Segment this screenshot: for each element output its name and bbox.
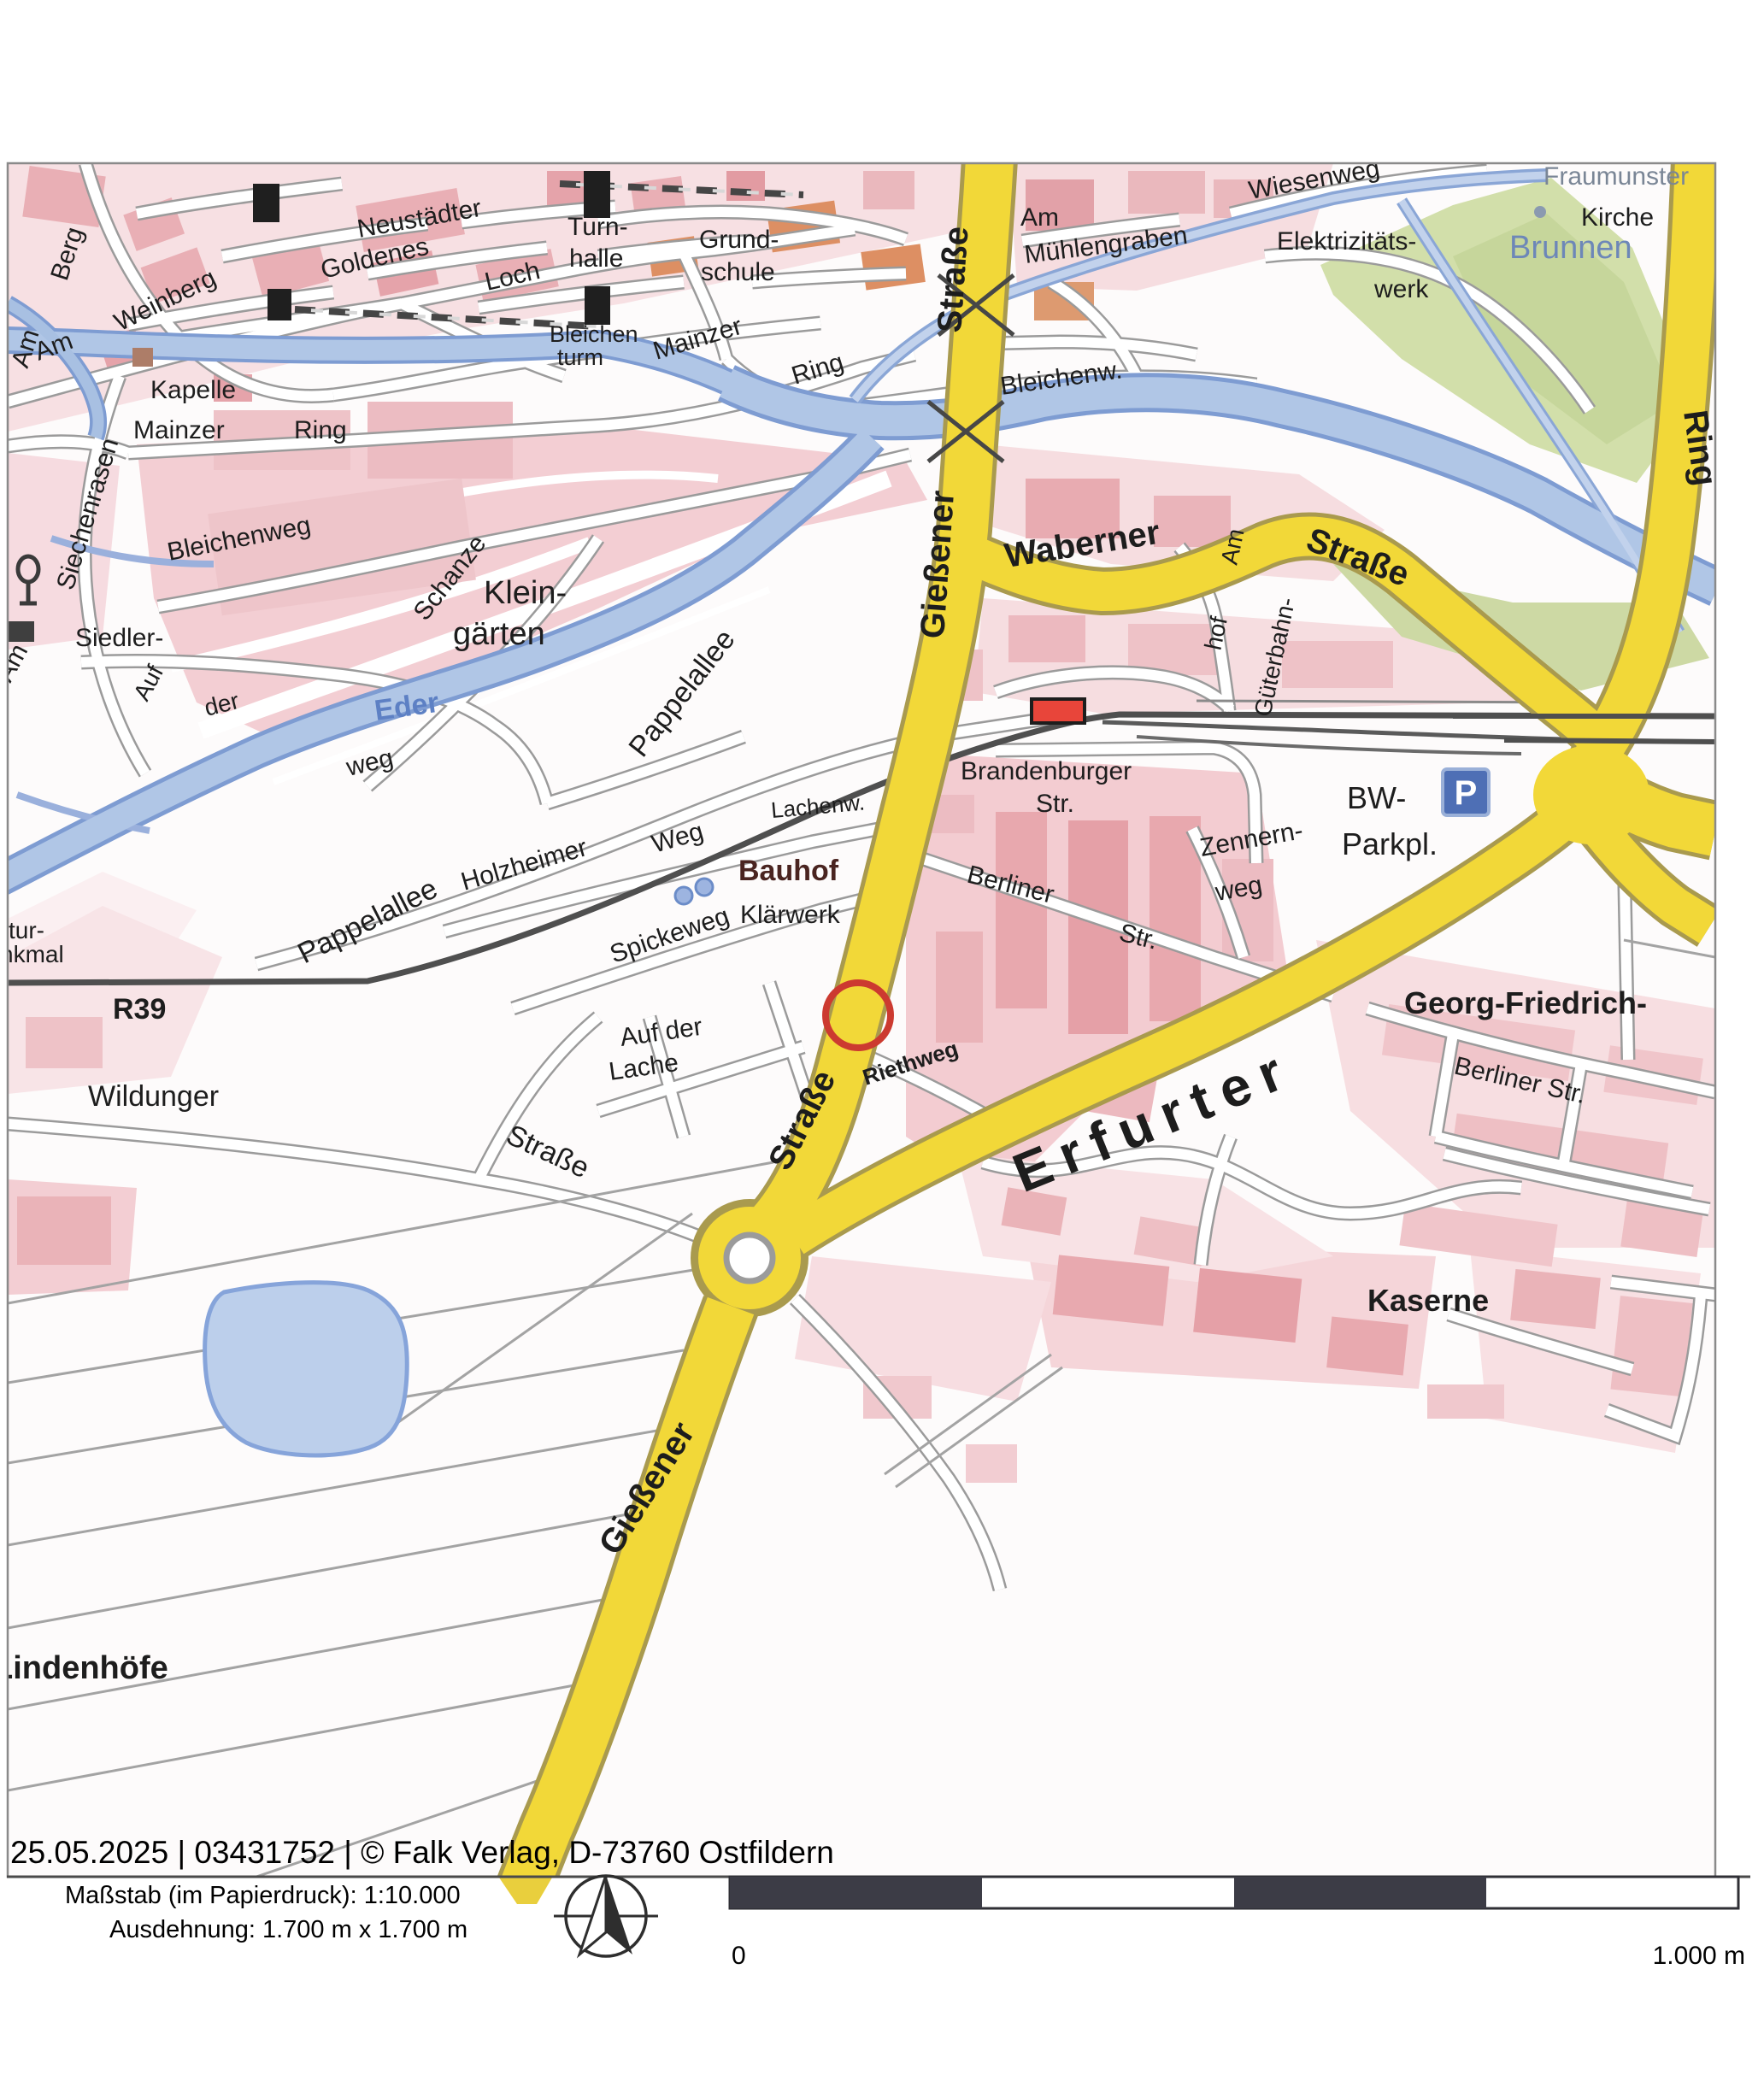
svg-text:Siedler-: Siedler- xyxy=(75,624,163,652)
svg-text:turm: turm xyxy=(557,344,603,370)
svg-text:BW-: BW- xyxy=(1347,780,1406,815)
svg-text:Brunnen: Brunnen xyxy=(1509,230,1632,266)
svg-text:R39: R39 xyxy=(113,993,166,1026)
svg-text:Ausdehnung: 1.700 m x 1.700 m: Ausdehnung: 1.700 m x 1.700 m xyxy=(109,1916,467,1943)
svg-text:Turn-: Turn- xyxy=(567,213,628,241)
svg-text:Brandenburger: Brandenburger xyxy=(961,757,1132,785)
svg-text:Wildunger: Wildunger xyxy=(88,1080,219,1113)
svg-text:halle: halle xyxy=(569,244,623,273)
svg-text:Am: Am xyxy=(1020,203,1059,232)
svg-text:Klärwerk: Klärwerk xyxy=(740,901,841,929)
svg-text:Bleichen: Bleichen xyxy=(550,321,638,347)
svg-text:Klein-: Klein- xyxy=(484,575,567,611)
svg-text:25.05.2025 | 03431752 | © Falk: 25.05.2025 | 03431752 | © Falk Verlag, D… xyxy=(10,1835,834,1870)
svg-text:P: P xyxy=(1455,774,1478,812)
svg-text:Lindenhöfe: Lindenhöfe xyxy=(0,1650,168,1686)
svg-text:tur-: tur- xyxy=(9,917,44,943)
svg-text:Kapelle: Kapelle xyxy=(150,376,236,404)
svg-text:Kaserne: Kaserne xyxy=(1367,1283,1489,1318)
svg-text:Georg-Friedrich-: Georg-Friedrich- xyxy=(1404,985,1647,1020)
svg-text:Bauhof: Bauhof xyxy=(738,855,839,887)
svg-text:Fraumunster: Fraumunster xyxy=(1543,162,1689,191)
svg-text:1.000 m: 1.000 m xyxy=(1653,1942,1745,1970)
svg-text:werk: werk xyxy=(1373,275,1429,303)
svg-text:gärten: gärten xyxy=(453,616,545,652)
svg-text:Grund-: Grund- xyxy=(699,226,779,254)
svg-text:Ring: Ring xyxy=(294,416,347,444)
svg-text:Mainzer: Mainzer xyxy=(133,416,225,444)
svg-text:Maßstab (im Papierdruck): 1:10: Maßstab (im Papierdruck): 1:10.000 xyxy=(65,1882,461,1909)
svg-text:0: 0 xyxy=(732,1942,746,1970)
svg-text:Straße: Straße xyxy=(931,225,976,333)
svg-text:Parkpl.: Parkpl. xyxy=(1342,826,1438,861)
svg-text:schule: schule xyxy=(701,258,775,286)
svg-text:Elektrizitäts-: Elektrizitäts- xyxy=(1277,227,1416,256)
svg-text:Str.: Str. xyxy=(1036,790,1074,818)
svg-text:nkmal: nkmal xyxy=(0,941,64,967)
svg-text:Kirche: Kirche xyxy=(1581,203,1654,232)
